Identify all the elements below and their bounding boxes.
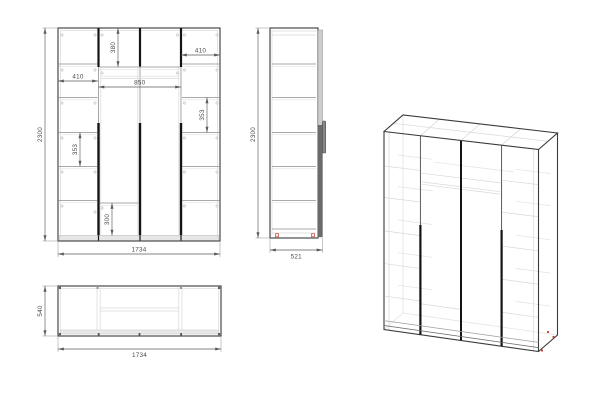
dim-850: 850 bbox=[99, 80, 182, 88]
dim-380: 380 bbox=[110, 28, 118, 67]
side-door-panel bbox=[318, 30, 326, 237]
dim-410-right: 410 bbox=[181, 47, 220, 55]
front-plinth bbox=[60, 236, 219, 241]
top-carcass bbox=[58, 286, 221, 336]
dim-410-left: 410 bbox=[58, 73, 98, 81]
dim-label-380: 380 bbox=[110, 42, 117, 54]
dim-353-left: 353 bbox=[72, 133, 80, 167]
side-carcass bbox=[270, 28, 318, 238]
dim-label-front-height: 2300 bbox=[37, 127, 44, 142]
dim-front-height: 2300 bbox=[37, 28, 57, 241]
dim-label-front-width: 1734 bbox=[131, 246, 146, 253]
dim-label-353-right: 353 bbox=[199, 109, 206, 121]
dim-top-depth: 540 bbox=[37, 286, 57, 336]
iso-view bbox=[384, 115, 558, 352]
dim-300: 300 bbox=[104, 203, 112, 236]
iso-hidden-edges bbox=[384, 115, 558, 351]
front-divider-panels bbox=[99, 28, 182, 236]
dim-label-side-depth: 521 bbox=[291, 254, 303, 261]
door-handle bbox=[323, 121, 326, 153]
dim-label-300: 300 bbox=[104, 214, 111, 226]
dim-label-top-depth: 540 bbox=[37, 305, 44, 317]
dim-label-410-right: 410 bbox=[195, 47, 207, 54]
dim-side-depth: 521 bbox=[270, 238, 323, 261]
dim-side-height: 2300 bbox=[250, 28, 269, 238]
dim-top-width: 1734 bbox=[58, 337, 221, 359]
dim-front-width: 1734 bbox=[58, 242, 220, 257]
dim-353-right: 353 bbox=[199, 98, 207, 133]
dim-label-side-height: 2300 bbox=[250, 127, 257, 142]
front-view: 2300 1734 380 410 410 850 353 bbox=[37, 28, 220, 257]
dim-label-410-left: 410 bbox=[72, 73, 84, 80]
dim-label-top-width: 1734 bbox=[132, 352, 147, 359]
dim-label-850: 850 bbox=[134, 80, 146, 87]
drawing-canvas: 2300 1734 380 410 410 850 353 bbox=[0, 0, 600, 410]
dim-label-353-left: 353 bbox=[72, 144, 79, 156]
side-view: 2300 521 bbox=[250, 28, 326, 261]
side-foot-markers bbox=[276, 234, 315, 237]
top-view: 540 1734 bbox=[37, 286, 221, 359]
iso-shelves bbox=[385, 155, 551, 317]
iso-dividers bbox=[420, 136, 501, 347]
